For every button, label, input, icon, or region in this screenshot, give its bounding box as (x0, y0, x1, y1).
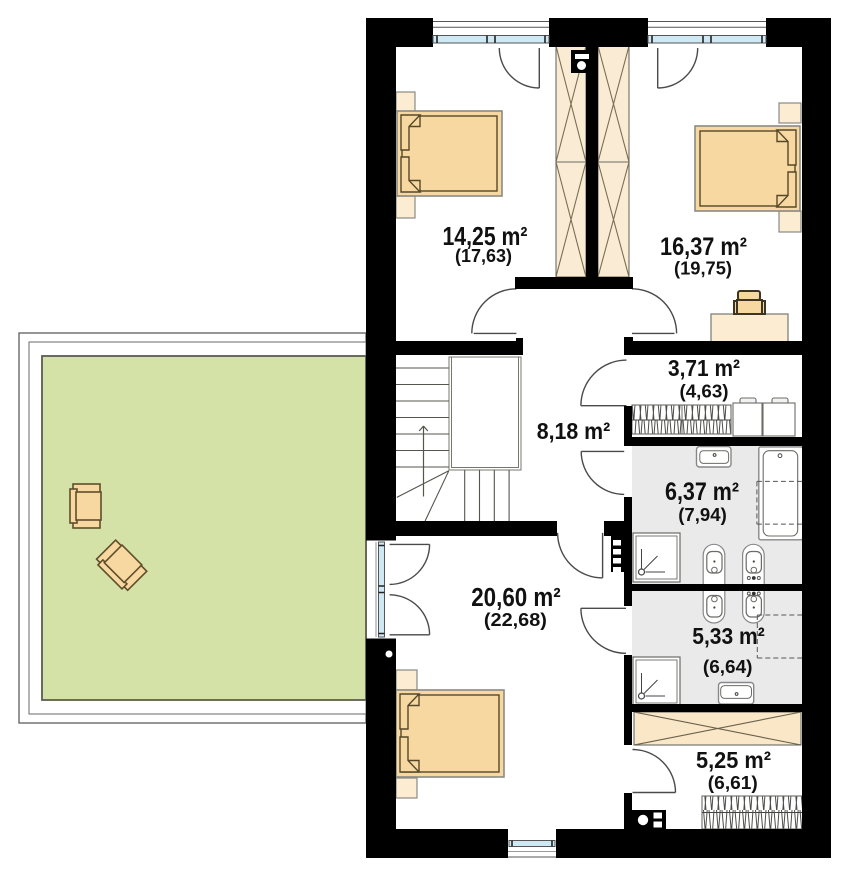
svg-text:(4,63): (4,63) (680, 382, 729, 402)
svg-text:(6,61): (6,61) (708, 772, 758, 793)
svg-text:(6,64): (6,64) (703, 656, 753, 677)
svg-text:(19,75): (19,75) (674, 258, 732, 279)
svg-text:5,25 m²: 5,25 m² (696, 747, 771, 773)
svg-text:3,71 m²: 3,71 m² (668, 355, 740, 381)
svg-text:(22,68): (22,68) (484, 609, 547, 630)
svg-text:8,18 m²: 8,18 m² (537, 418, 611, 444)
svg-text:20,60 m²: 20,60 m² (471, 584, 561, 612)
svg-text:6,37 m²: 6,37 m² (665, 478, 739, 506)
svg-text:(7,94): (7,94) (678, 504, 727, 525)
svg-text:(17,63): (17,63) (455, 245, 512, 266)
svg-text:5,33 m²: 5,33 m² (692, 623, 765, 649)
